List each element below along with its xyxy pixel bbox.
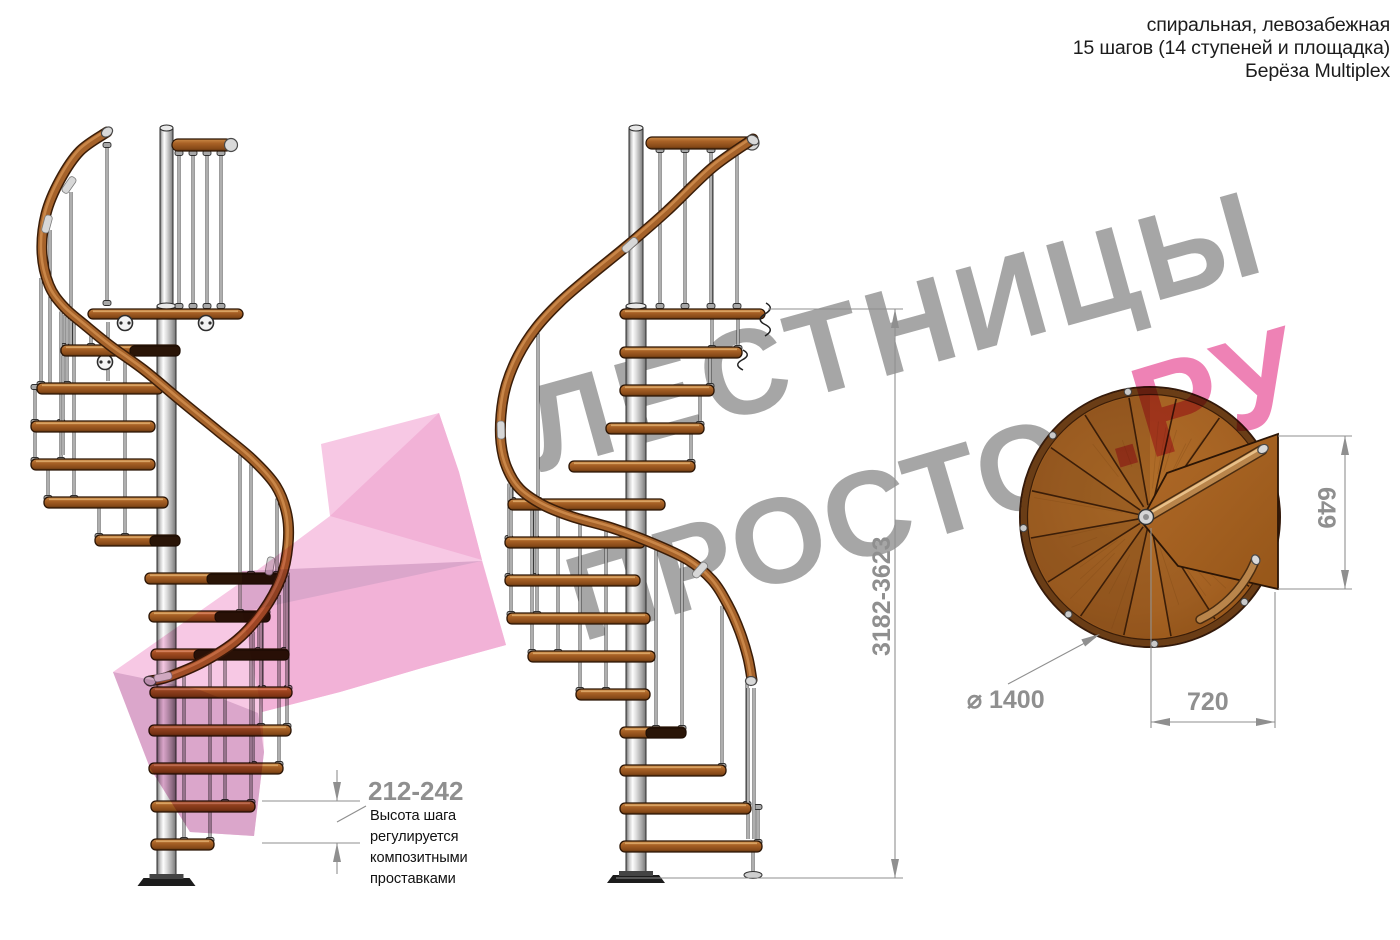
svg-text:⌀ 1400: ⌀ 1400 (967, 686, 1045, 714)
svg-text:720: 720 (1187, 688, 1229, 716)
svg-text:649: 649 (1312, 487, 1340, 529)
svg-text:212-242: 212-242 (368, 776, 463, 806)
svg-text:3182-3623: 3182-3623 (868, 536, 896, 656)
